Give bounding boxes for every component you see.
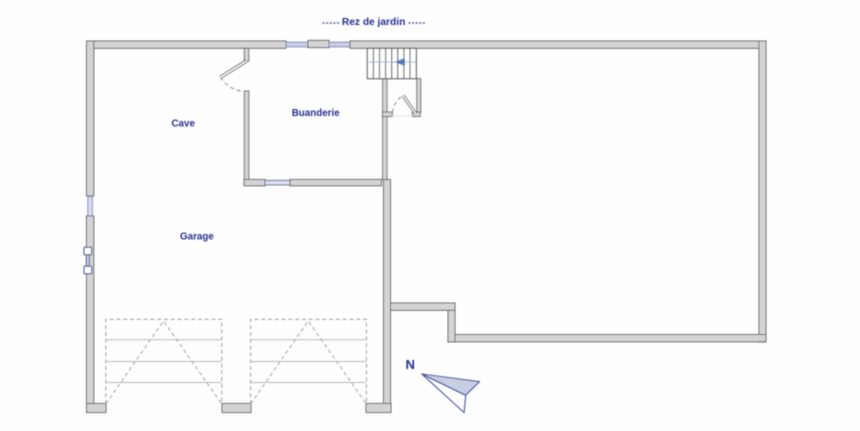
svg-text:Cave: Cave (171, 119, 195, 130)
svg-text:Buanderie: Buanderie (292, 108, 340, 119)
svg-text:Garage: Garage (180, 232, 214, 243)
svg-text:N: N (406, 357, 415, 372)
svg-text:Rez de jardin: Rez de jardin (342, 17, 405, 28)
